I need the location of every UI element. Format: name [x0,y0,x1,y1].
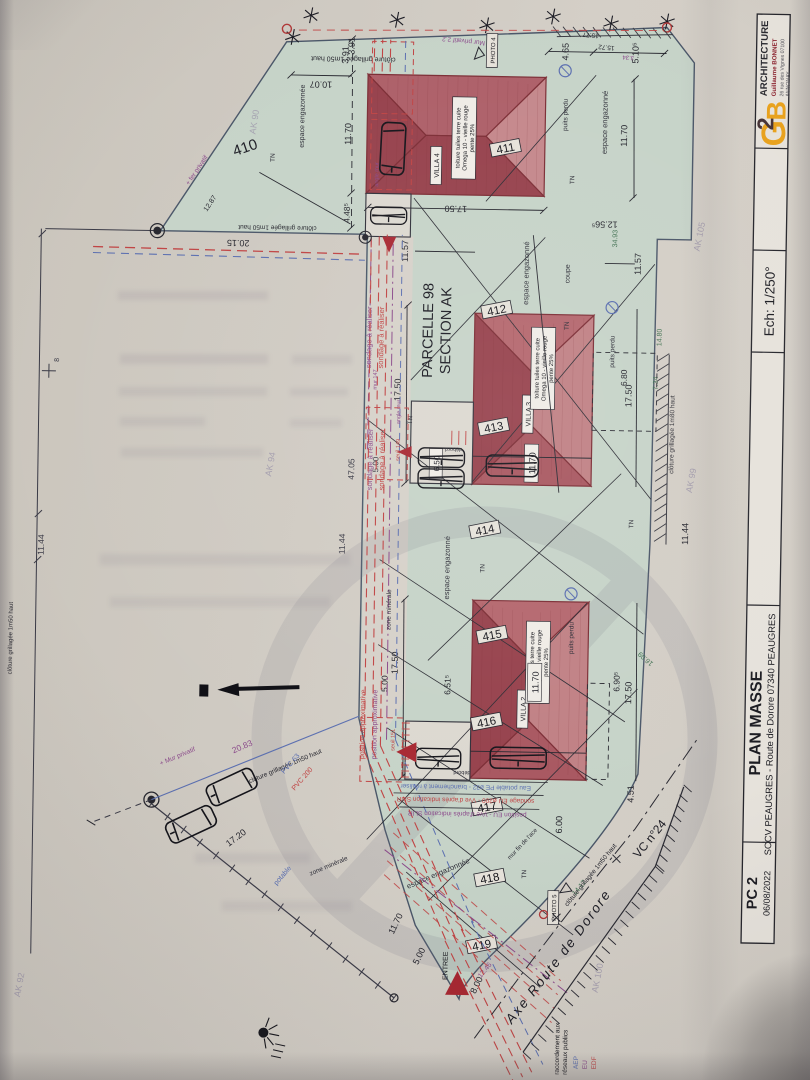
svg-text:6.00: 6.00 [554,816,564,834]
svg-text:17.50: 17.50 [390,651,400,674]
svg-text:espace engazonné: espace engazonné [521,241,531,305]
svg-text:7.34: 7.34 [653,376,660,390]
svg-text:06/08/2022: 06/08/2022 [761,871,772,916]
svg-text:AK 105: AK 105 [692,221,707,252]
svg-text:34.93: 34.93 [612,230,619,248]
svg-text:angle mur: angle mur [396,399,402,424]
svg-text:espace engazonné: espace engazonné [442,536,452,600]
svg-text:débord: débord [453,769,470,775]
svg-text:débord: débord [445,446,462,452]
svg-text:Guillaume BONNET: Guillaume BONNET [771,38,779,96]
svg-text:TN: TN [270,153,277,162]
svg-text:AK 99: AK 99 [684,467,698,493]
svg-text:PARCELLE 98: PARCELLE 98 [420,283,438,378]
svg-text:17.50: 17.50 [623,385,633,408]
svg-text:3.91: 3.91 [340,46,350,64]
svg-text:+ Mur privatif: + Mur privatif [159,746,197,767]
svg-text:11.44: 11.44 [680,523,690,545]
svg-text:20.83: 20.83 [230,738,254,756]
svg-text:potable: potable [273,865,293,887]
svg-text:TN: TN [564,321,571,330]
svg-text:espace engazonné: espace engazonné [600,91,610,155]
svg-text:raccordement aux: raccordement aux [554,1022,562,1075]
svg-text:toiture tuiles terre cuite: toiture tuiles terre cuite [455,107,462,168]
svg-text:17.50: 17.50 [623,682,633,705]
svg-text:EDF: EDF [591,1056,598,1069]
svg-text:11.70: 11.70 [619,125,629,147]
svg-text:zone minérale: zone minérale [385,589,393,630]
svg-text:TN: TN [628,519,635,528]
svg-text:TN: TN [479,564,486,573]
svg-text:11.57: 11.57 [400,240,410,262]
svg-text:puits perdu: puits perdu [568,621,576,654]
svg-text:4.51: 4.51 [625,785,635,803]
svg-text:AK 92: AK 92 [12,972,26,998]
svg-text:sondage à réaliser: sondage à réaliser [364,306,374,368]
svg-text:espace engazonnée: espace engazonnée [299,84,307,147]
svg-text:4.65: 4.65 [560,43,570,61]
svg-text:puits perdu: puits perdu [562,98,570,131]
svg-text:5.10⁵: 5.10⁵ [630,42,640,64]
svg-text:EU: EU [582,1060,589,1069]
svg-text:47.05: 47.05 [346,458,356,480]
svg-text:PC 2: PC 2 [745,877,762,910]
svg-text:8: 8 [54,358,61,362]
svg-text:TN: TN [521,869,528,878]
svg-text:PVC 200: PVC 200 [291,766,315,792]
svg-text:TN: TN [569,175,576,184]
svg-text:14.80: 14.80 [656,329,663,347]
svg-text:AK 94: AK 94 [263,451,277,477]
svg-text:6.51⁵: 6.51⁵ [442,675,452,695]
svg-text:pente 25%: pente 25% [544,647,551,676]
svg-text:AEP: AEP [573,1056,580,1069]
svg-text:ANNONAY: ANNONAY [785,71,791,97]
svg-text:10.07: 10.07 [310,79,333,89]
svg-text:clôture grillagée 1m50 haut: clôture grillagée 1m50 haut [238,223,317,231]
svg-text:17.50: 17.50 [392,378,402,401]
svg-text:20.15: 20.15 [227,238,250,248]
svg-text:pente 25%: pente 25% [470,123,477,152]
svg-text:B: B [761,101,791,121]
svg-text:6.80: 6.80 [619,369,629,386]
svg-text:17.50: 17.50 [444,204,467,214]
svg-text:PHOTO 4: PHOTO 4 [491,37,497,64]
svg-text:Ech: 1/250°: Ech: 1/250° [762,266,778,336]
svg-text:AK 100: AK 100 [590,962,605,993]
svg-text:seuil 151: seuil 151 [390,729,396,751]
svg-text:toiture tuiles terre cuite: toiture tuiles terre cuite [534,337,541,398]
svg-text:11.70: 11.70 [530,671,540,693]
svg-text:11.44: 11.44 [337,533,347,554]
svg-text:11.70: 11.70 [343,123,353,145]
svg-text:seuil 149: seuil 149 [395,439,401,461]
svg-text:pente 25%: pente 25% [549,353,556,382]
svg-text:11.44: 11.44 [36,534,46,555]
svg-text:coupe: coupe [565,264,572,283]
svg-text:6.90⁵: 6.90⁵ [611,672,621,692]
svg-text:17.20: 17.20 [224,827,248,849]
svg-text:sondage à réaliser: sondage à réaliser [377,428,387,490]
svg-text:12.56⁵: 12.56⁵ [591,219,618,229]
svg-text:VILLA 4: VILLA 4 [434,153,441,178]
svg-text:Omega 10 - vieille rouge: Omega 10 - vieille rouge [541,335,548,401]
svg-text:puits perdu: puits perdu [609,335,617,368]
svg-text:clôture grillagée 1m80 haut: clôture grillagée 1m80 haut [668,395,676,474]
svg-text:Omega 10 - vieille rouge: Omega 10 - vieille rouge [462,105,469,171]
svg-text:réseaux publics: réseaux publics [562,1029,570,1075]
svg-text:4.48⁵: 4.48⁵ [342,203,352,223]
svg-text:mur 147: mur 147 [373,369,379,389]
svg-text:sondage à réaliser: sondage à réaliser [365,428,375,490]
svg-text:clôture grillagée 1m50 haut: clôture grillagée 1m50 haut [8,602,15,675]
svg-text:SECTION AK: SECTION AK [438,287,456,375]
svg-text:ARCHITECTURE: ARCHITECTURE [759,20,771,96]
svg-text:ENTREE: ENTREE [442,951,450,980]
